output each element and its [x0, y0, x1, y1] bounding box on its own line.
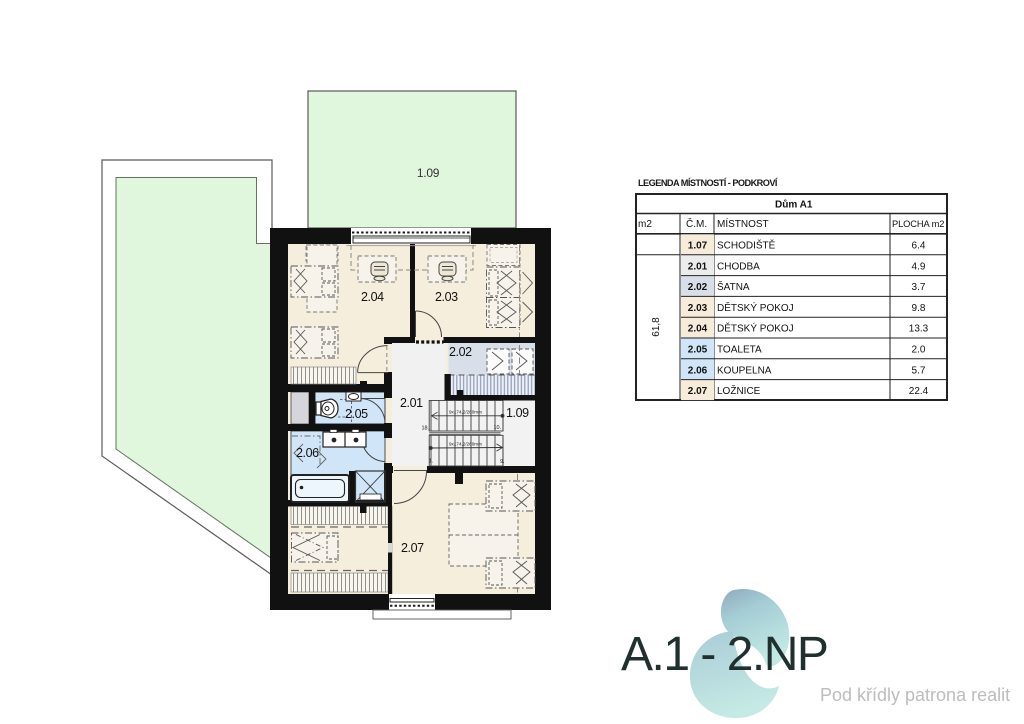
svg-text:2.07: 2.07 — [401, 541, 424, 555]
svg-text:CHODBA: CHODBA — [717, 261, 760, 272]
svg-text:2.04: 2.04 — [688, 324, 708, 335]
svg-text:61,8: 61,8 — [651, 317, 662, 337]
svg-text:DĚTSKÝ POKOJ: DĚTSKÝ POKOJ — [717, 322, 794, 335]
svg-text:1.09: 1.09 — [506, 406, 529, 420]
svg-text:1.07: 1.07 — [688, 241, 708, 252]
svg-text:9x174,2/260mm: 9x174,2/260mm — [449, 442, 482, 447]
svg-text:9.: 9. — [500, 459, 505, 465]
svg-text:2.01: 2.01 — [400, 396, 423, 410]
svg-text:A.1 - 2.NP: A.1 - 2.NP — [621, 628, 827, 681]
svg-text:2.07: 2.07 — [688, 386, 708, 397]
svg-text:2.06: 2.06 — [688, 365, 708, 376]
svg-text:ŠATNA: ŠATNA — [717, 280, 750, 293]
svg-text:2.03: 2.03 — [435, 290, 458, 304]
svg-text:2.06: 2.06 — [296, 446, 319, 460]
svg-text:4.9: 4.9 — [912, 261, 926, 272]
svg-text:2.02: 2.02 — [688, 282, 708, 293]
svg-text:Dům A1: Dům A1 — [775, 199, 813, 211]
svg-text:1.09: 1.09 — [417, 166, 440, 180]
svg-text:9x174,2/260mm: 9x174,2/260mm — [449, 410, 482, 415]
svg-text:2.05: 2.05 — [688, 345, 708, 356]
svg-text:LOŽNICE: LOŽNICE — [717, 384, 761, 397]
svg-text:3.7: 3.7 — [912, 282, 926, 293]
svg-text:MÍSTNOST: MÍSTNOST — [717, 217, 769, 230]
svg-text:6.4: 6.4 — [912, 241, 926, 252]
svg-text:2.02: 2.02 — [449, 345, 472, 359]
svg-text:Pod křídly patrona realit: Pod křídly patrona realit — [820, 685, 1010, 705]
svg-text:Č.M.: Č.M. — [686, 217, 707, 230]
svg-text:2.0: 2.0 — [912, 345, 926, 356]
svg-text:TOALETA: TOALETA — [717, 345, 762, 356]
svg-text:2.05: 2.05 — [345, 407, 368, 421]
svg-text:5.7: 5.7 — [912, 365, 926, 376]
svg-text:22.4: 22.4 — [909, 386, 929, 397]
svg-text:DĚTSKÝ POKOJ: DĚTSKÝ POKOJ — [717, 301, 794, 314]
svg-text:10.: 10. — [494, 425, 502, 431]
svg-text:2.04: 2.04 — [361, 290, 384, 304]
svg-text:m2: m2 — [638, 219, 652, 230]
svg-text:2.01: 2.01 — [688, 261, 708, 272]
svg-text:13.3: 13.3 — [909, 324, 929, 335]
svg-text:SCHODIŠTĚ: SCHODIŠTĚ — [717, 239, 776, 252]
svg-text:1.: 1. — [429, 459, 434, 465]
svg-text:KOUPELNA: KOUPELNA — [717, 365, 772, 376]
svg-text:2.03: 2.03 — [688, 303, 708, 314]
svg-text:PLOCHA m2: PLOCHA m2 — [892, 219, 944, 229]
svg-text:LEGENDA MÍSTNOSTÍ - PODKROVÍ: LEGENDA MÍSTNOSTÍ - PODKROVÍ — [638, 177, 778, 188]
svg-text:18.: 18. — [422, 426, 430, 432]
svg-text:9.8: 9.8 — [912, 303, 926, 314]
